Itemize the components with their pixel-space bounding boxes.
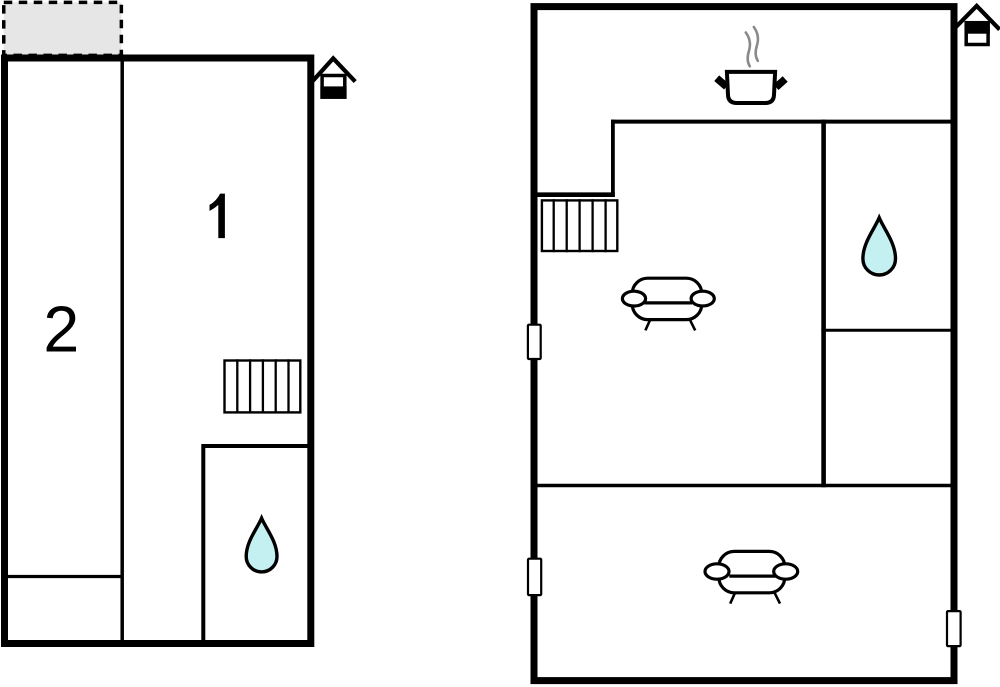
svg-text:2: 2 — [43, 294, 79, 366]
